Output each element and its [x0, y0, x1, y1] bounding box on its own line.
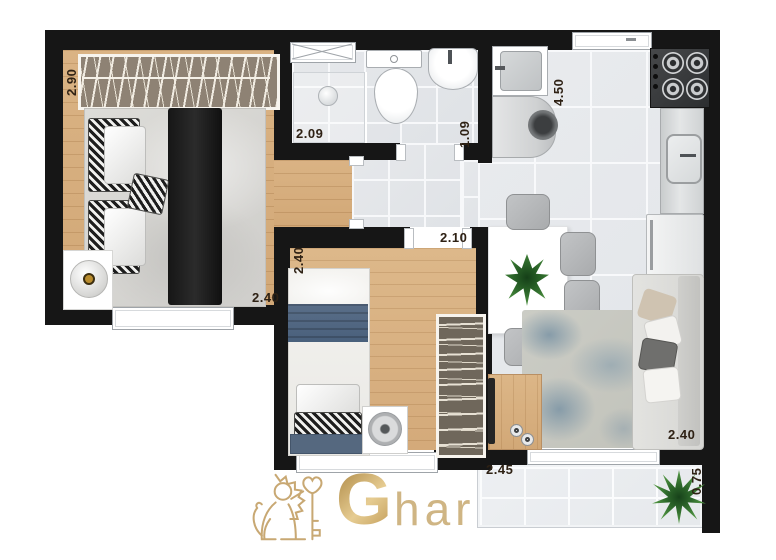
- bathroom-window: [290, 42, 356, 63]
- brand-initial: G: [336, 464, 392, 536]
- brand-watermark: G har: [248, 460, 478, 555]
- brand-rest: har: [394, 486, 475, 532]
- bathroom-basin: [428, 48, 478, 90]
- bedroom2-fan: [368, 412, 402, 446]
- kitchen-sink: [666, 134, 702, 184]
- bedroom1-lamp-center: [83, 273, 95, 285]
- floor-plan: 2.90 2.40 2.09 1.09 4.50 2.40 2.10 2.40 …: [0, 0, 776, 560]
- bedroom2-door-jamb-left: [404, 228, 414, 249]
- stove-burner-1: [662, 52, 684, 74]
- bedroom1-doorway-floor: [274, 160, 352, 227]
- dim-balcony-depth: 0.75: [690, 455, 703, 495]
- basin-faucet: [448, 50, 452, 64]
- closet-rod: [82, 77, 270, 79]
- dim-bedroom1-closet: 2.90: [65, 52, 78, 96]
- dim-bathroom-depth: 1.09: [458, 108, 471, 148]
- dim-living-width: 2.40: [668, 428, 695, 441]
- stove-burner-3: [662, 78, 684, 100]
- sofa-cushion-white-2: [642, 366, 681, 404]
- bedroom2-headboard-blue: [290, 434, 368, 454]
- stove-knob-4: [653, 84, 658, 89]
- rack-decor-2: [521, 433, 534, 446]
- dining-chair-right-1: [560, 232, 596, 276]
- shower-drain: [318, 86, 338, 106]
- fridge: [646, 214, 704, 278]
- wall-living-balcony-right: [658, 448, 720, 465]
- stove-knob-1: [653, 54, 658, 59]
- washing-machine-door: [528, 110, 558, 140]
- balcony-sliding-door: [527, 449, 660, 465]
- dining-chair-top: [506, 194, 550, 230]
- bedroom1-door-jamb-bottom: [349, 219, 364, 229]
- fridge-handle: [650, 220, 653, 270]
- bedroom1-bed-runner: [168, 108, 222, 305]
- dim-bedroom2-width: 2.10: [440, 231, 467, 244]
- dim-bedroom2-length: 2.40: [292, 232, 305, 274]
- entry-door-handle: [626, 38, 636, 41]
- sofa-backrest: [678, 276, 700, 446]
- stove-burner-2: [686, 52, 708, 74]
- bathroom-door-jamb-left: [396, 144, 406, 161]
- lion-key-icon: [248, 462, 340, 554]
- laundry-tank-faucet: [495, 66, 505, 70]
- bedroom2-blanket-blue: [288, 304, 368, 342]
- stove-knob-3: [653, 74, 658, 79]
- wall-bathroom-service: [478, 50, 492, 163]
- stove-knob-2: [653, 64, 658, 69]
- dim-kitchen-length: 4.50: [552, 56, 565, 106]
- laundry-tank-basin: [500, 51, 542, 91]
- bedroom2-wardrobe: [436, 314, 486, 458]
- entry-door: [572, 32, 652, 50]
- wall-bathroom-bottom-left: [274, 143, 400, 160]
- kitchen-sink-faucet: [680, 154, 696, 157]
- dim-bedroom1-width: 2.40: [252, 291, 279, 304]
- bedroom1-cushion-small: [127, 173, 170, 216]
- bedroom1-closet: [78, 54, 280, 110]
- stove-burner-4: [686, 78, 708, 100]
- toilet-flush-button: [390, 55, 398, 63]
- tv: [488, 378, 495, 444]
- bedroom1-door-jamb-top: [349, 156, 364, 166]
- dim-balcony-length: 2.45: [486, 463, 513, 476]
- window-x-glass: [290, 42, 354, 61]
- bedroom1-window: [112, 307, 234, 330]
- wall-left: [45, 30, 63, 325]
- dim-bathroom-width: 2.09: [296, 127, 323, 140]
